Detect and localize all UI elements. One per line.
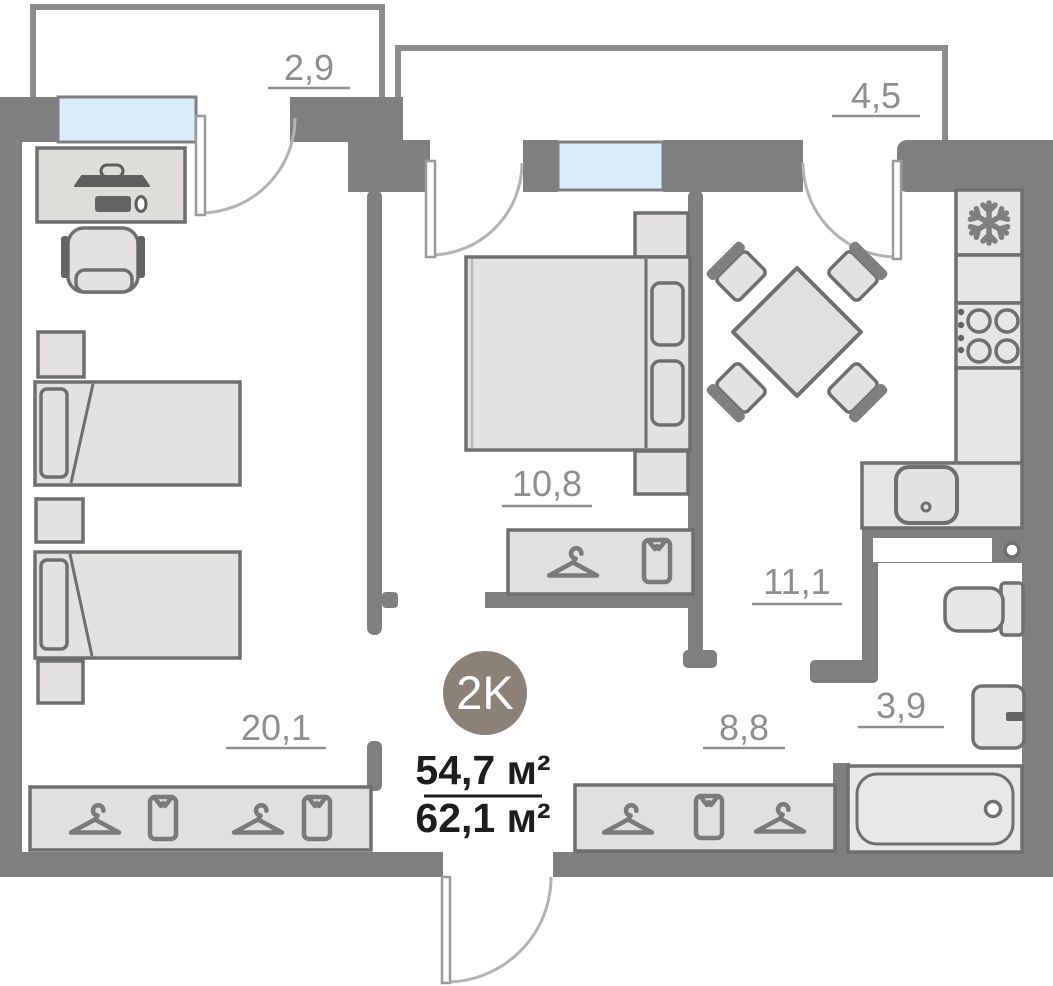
area-total: 62,1 м² xyxy=(415,795,550,841)
pillow xyxy=(652,361,683,425)
badge-label: 2K xyxy=(456,666,514,719)
nightstand xyxy=(38,332,84,377)
kitchen-counter xyxy=(956,368,1022,464)
mouse-icon xyxy=(136,197,146,212)
area-living: 54,7 м² xyxy=(415,747,550,793)
single-bed-1 xyxy=(35,382,240,485)
label-bathroom: 3,9 xyxy=(876,685,926,726)
keyboard-icon xyxy=(95,196,131,212)
floorplan-page: 2,9 4,5 10,8 11,1 20,1 8,8 3,9 2K 54,7 м… xyxy=(0,0,1053,986)
nightstand xyxy=(38,661,83,703)
pillow xyxy=(41,560,67,649)
label-balcony-small: 2,9 xyxy=(284,47,334,88)
wardrobe-bedroom xyxy=(508,530,693,594)
stove xyxy=(956,303,1022,368)
faucet xyxy=(1006,712,1024,721)
washbasin xyxy=(973,686,1024,748)
window-living xyxy=(58,97,196,142)
kitchen-counter xyxy=(956,255,1022,303)
single-bed-2 xyxy=(35,552,240,658)
kitchen-sink-counter xyxy=(862,463,1022,528)
monitor-icon xyxy=(75,176,149,186)
nightstand xyxy=(635,451,688,494)
pillow xyxy=(41,389,67,477)
wardrobe-living xyxy=(30,787,371,850)
dining-chair xyxy=(705,240,769,304)
sink xyxy=(896,467,957,523)
fridge xyxy=(956,190,1022,255)
floorplan-svg: 2,9 4,5 10,8 11,1 20,1 8,8 3,9 2K 54,7 м… xyxy=(0,0,1053,986)
office-chair xyxy=(61,228,145,292)
desk xyxy=(37,148,185,222)
entrance-door xyxy=(442,877,551,983)
label-balcony-large: 4,5 xyxy=(851,75,901,116)
nightstand xyxy=(36,499,83,542)
dining-chair xyxy=(705,360,769,424)
bathtub xyxy=(848,766,1022,852)
label-hallway: 8,8 xyxy=(719,707,769,748)
door-living-balcony xyxy=(196,116,295,215)
wardrobe-hallway xyxy=(575,785,835,851)
pillow xyxy=(652,283,683,345)
label-bedroom: 10,8 xyxy=(512,463,582,504)
double-bed xyxy=(466,257,690,450)
dining-chair xyxy=(825,240,889,304)
nightstand xyxy=(635,213,688,257)
dining-table-set xyxy=(705,240,889,424)
apartment-type-badge: 2K xyxy=(443,651,527,735)
dining-chair xyxy=(825,360,889,424)
door-bedroom-balcony xyxy=(426,161,522,257)
label-living-room: 20,1 xyxy=(241,707,311,748)
window-bedroom xyxy=(558,142,663,190)
wall-niche xyxy=(873,538,992,562)
toilet xyxy=(945,583,1023,635)
label-kitchen: 11,1 xyxy=(763,561,830,602)
tub-drain xyxy=(986,802,1001,817)
area-summary: 54,7 м² 62,1 м² xyxy=(415,747,550,841)
vent-hole xyxy=(1005,543,1019,557)
